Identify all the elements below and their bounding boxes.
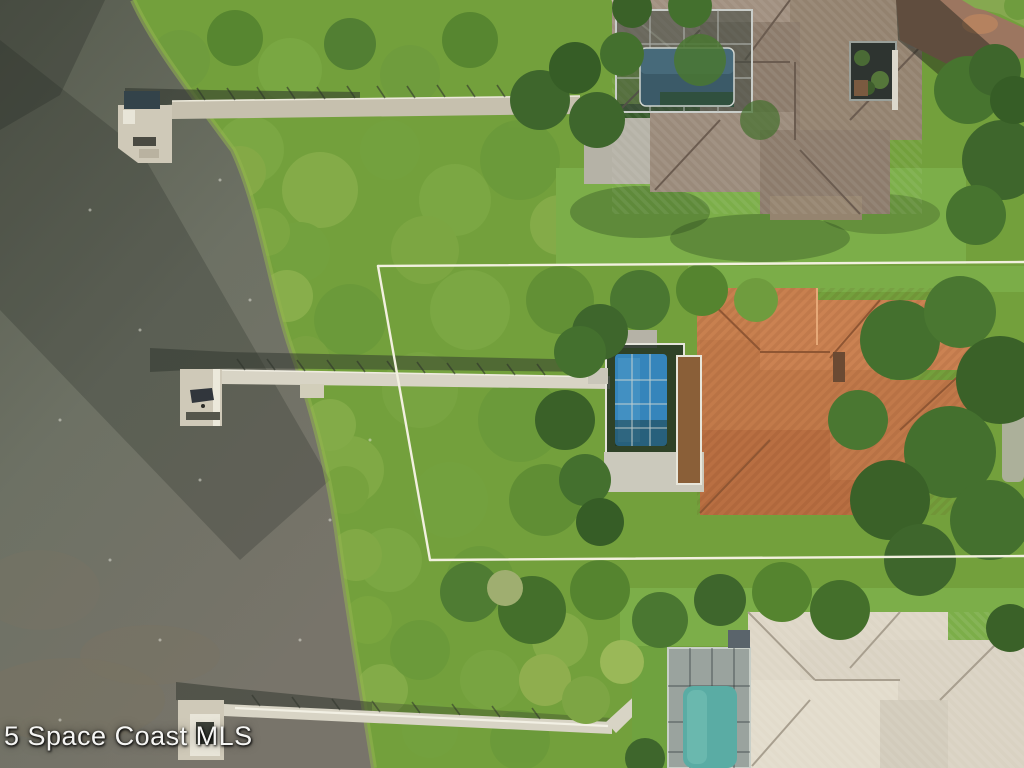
pool-equipment: [728, 630, 750, 648]
south-roof: [748, 612, 1024, 768]
south-pool-enclosure: [668, 630, 750, 768]
boathouse-roof: [124, 91, 160, 109]
boardwalk-step: [300, 384, 324, 398]
lanai-courtyard: [677, 356, 701, 484]
atrium-courtyard: [850, 42, 898, 110]
mls-watermark: 5 Space Coast MLS: [4, 721, 253, 752]
aerial-scene: [0, 0, 1024, 768]
aerial-photo: 5 Space Coast MLS: [0, 0, 1024, 768]
pool-tarp: [660, 92, 734, 107]
shallow-patch: [80, 625, 220, 685]
chimney: [833, 352, 845, 382]
